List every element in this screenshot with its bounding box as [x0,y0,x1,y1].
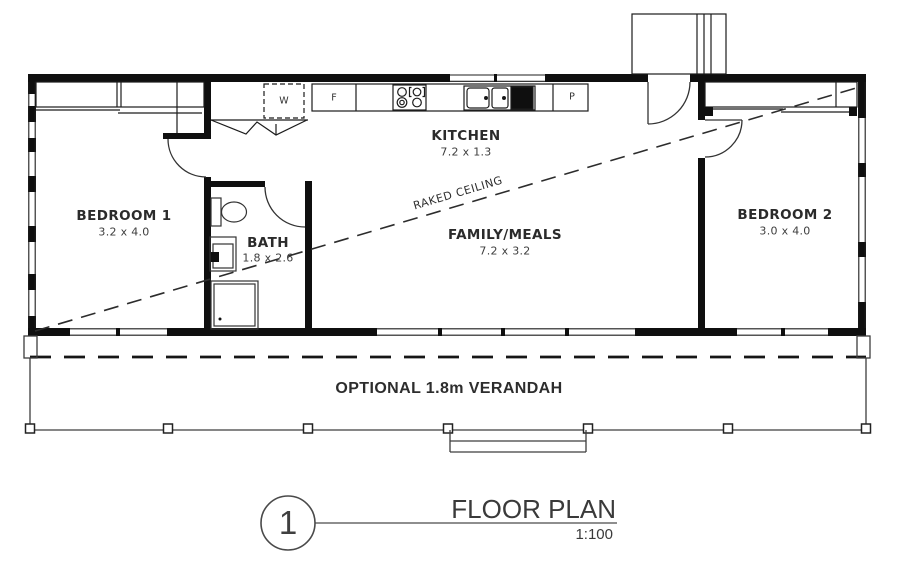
kitchen-dims: 7.2 x 1.3 [440,146,491,159]
bedroom1-wardrobe [36,82,204,133]
verandah-label: OPTIONAL 1.8m VERANDAH [335,380,562,398]
drawing-scale: 1:100 [575,526,613,543]
bedroom2-dims: 3.0 x 4.0 [759,225,810,238]
kitchen-bench [312,84,588,111]
washer-label: W [279,96,288,107]
bedroom1-door [168,139,206,177]
drawing-number: 1 [279,504,297,542]
dishwasher-icon [511,87,533,109]
bedroom2-door [705,120,742,157]
laundry-cupboard [211,84,308,135]
cooktop-icon [393,85,426,110]
bifold-doors [211,120,307,135]
pantry-label: P [569,92,575,103]
family-dims: 7.2 x 3.2 [479,245,530,258]
shower-icon [211,281,258,329]
floor-plan-drawing: BEDROOM 1 3.2 x 4.0 BATH 1.8 x 2.6 KITCH… [0,0,900,574]
family-label: FAMILY/MEALS [448,227,562,243]
entry-door [648,82,690,124]
bedroom1-dims: 3.2 x 4.0 [98,226,149,239]
bath-label: BATH [247,235,289,251]
window-mullions [116,74,785,336]
bath-dims: 1.8 x 2.6 [242,252,293,265]
drawing-title: FLOOR PLAN [451,494,616,525]
bath-door [265,187,305,227]
plan-linework [0,0,900,574]
bedroom2-label: BEDROOM 2 [737,207,832,223]
vanity-icon [210,237,236,271]
fridge-label: F [331,93,336,104]
verandah-posts [26,424,871,433]
toilet-icon [211,198,247,226]
bedroom1-label: BEDROOM 1 [76,208,171,224]
kitchen-label: KITCHEN [431,128,500,144]
entry-porch [632,14,726,74]
sink-icon [464,86,535,110]
steps-icon [450,430,586,452]
